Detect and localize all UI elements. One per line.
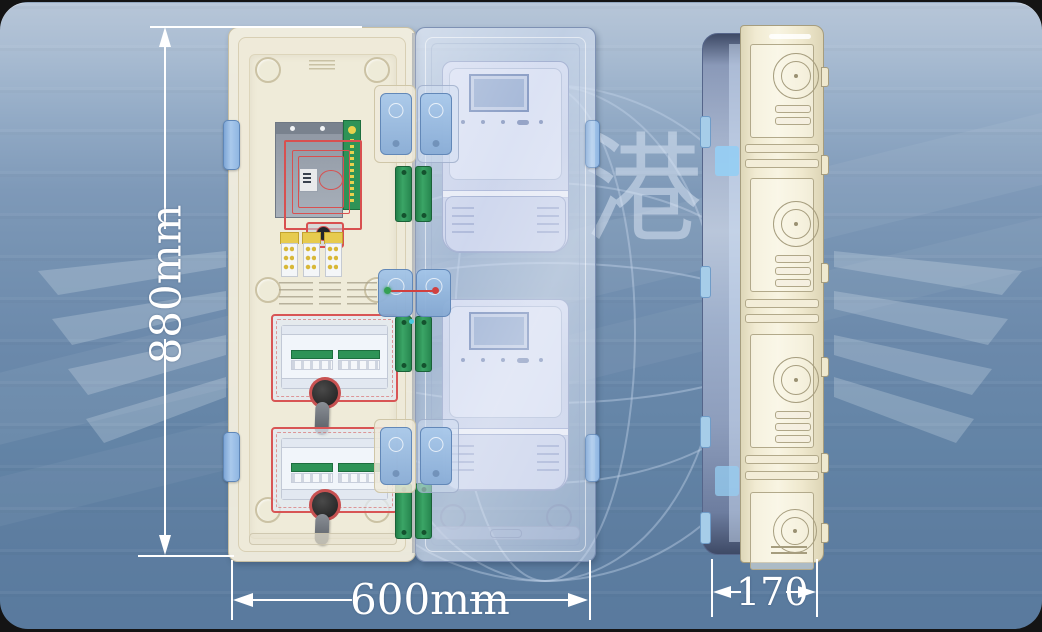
breaker-label-strip: [338, 350, 380, 359]
door-latch: [420, 93, 452, 155]
divider-rail: [745, 314, 819, 323]
arrowhead-down-icon: [159, 535, 171, 555]
side-clip: [700, 416, 711, 448]
din-rail: [282, 326, 387, 335]
breaker-toggles: [291, 360, 333, 370]
image-card: 恒港: [0, 2, 1042, 629]
extension-line: [589, 560, 591, 620]
door-latch: [420, 427, 452, 485]
divider-rail: [745, 455, 819, 464]
dimension-line: [164, 43, 166, 229]
top-vent-slots: [309, 60, 335, 70]
side-latch-block: [715, 466, 739, 496]
knockout-circle: [773, 201, 819, 247]
plate-rail: [276, 123, 342, 134]
divider-rail: [745, 471, 819, 480]
mounting-nub: [821, 453, 829, 473]
dimension-line: [164, 339, 166, 537]
knockout-circle: [773, 53, 819, 99]
corner-screw: [364, 57, 390, 83]
door-latch: [380, 93, 412, 155]
corner-screw: [255, 277, 281, 303]
mounting-nub: [821, 155, 829, 175]
vent-slots: [279, 282, 313, 306]
seal-green-dot: [384, 287, 391, 294]
breaker-row: [281, 438, 388, 500]
vent-slot: [775, 117, 811, 125]
vent-slot: [775, 279, 811, 287]
terminal-block: [281, 232, 298, 276]
height-dimension-label: 880mm: [110, 233, 222, 335]
door-hinge: [223, 432, 240, 482]
green-hinge-strip: [395, 166, 412, 222]
dimension-line: [786, 591, 798, 593]
corner-screw: [255, 57, 281, 83]
side-view: [700, 25, 828, 561]
side-panel: [750, 178, 814, 292]
vent-slot: [775, 255, 811, 263]
door-bottom-ledge: [249, 533, 397, 545]
breaker-toggles: [338, 360, 380, 370]
dimension-line: [470, 599, 568, 601]
mounting-nub: [821, 67, 829, 87]
mounting-nub: [821, 357, 829, 377]
breaker-label-strip: [291, 350, 333, 359]
arrowhead-right-icon: [568, 593, 588, 607]
mounting-nub: [821, 523, 829, 543]
arrowhead-left-icon: [233, 593, 253, 607]
terminal-dots: [305, 246, 316, 272]
side-clip: [700, 116, 711, 148]
divider-rail: [745, 159, 819, 168]
side-panel: [750, 44, 814, 138]
green-hinge-strip: [415, 166, 432, 222]
mounting-nub: [821, 263, 829, 283]
side-latch-block: [715, 146, 739, 176]
side-panel: [750, 334, 814, 448]
terminal-dots: [283, 246, 294, 272]
divider-rail: [745, 144, 819, 153]
divider-rail: [745, 299, 819, 308]
vent-slots: [319, 282, 341, 306]
plate-screw-dot: [290, 126, 295, 131]
seal-wire: [388, 290, 436, 292]
dimension-line: [252, 599, 352, 601]
breaker-label-strip: [291, 463, 333, 472]
green-hinge-strip: [415, 316, 432, 372]
meter-seal-chip: [299, 168, 318, 192]
extension-line: [138, 555, 234, 557]
bottom-vent-line: [771, 546, 807, 548]
side-clip: [700, 266, 711, 298]
vent-slot: [775, 423, 811, 431]
front-view: [228, 27, 594, 560]
vent-slots: [347, 282, 377, 306]
terminal-block: [303, 232, 320, 276]
side-clip: [700, 512, 711, 544]
seal-ellipse-outline: [319, 170, 343, 190]
section-divider: [745, 450, 817, 488]
arrowhead-right-icon: [798, 586, 816, 598]
knockout-circle: [773, 357, 819, 403]
seal-cyan-dot: [409, 319, 414, 324]
vent-slot: [775, 105, 811, 113]
section-divider: [745, 140, 817, 174]
side-panel: [750, 492, 814, 570]
section-divider: [745, 294, 817, 330]
seal-red-dot: [432, 287, 439, 294]
door-hinge: [223, 120, 240, 170]
pcb-led: [348, 126, 356, 134]
green-hinge-strip: [395, 316, 412, 372]
width-dimension-label: 600mm: [350, 574, 472, 626]
extension-line: [150, 26, 362, 28]
door-latch: [380, 427, 412, 485]
plate-screw-dot: [320, 126, 325, 131]
breaker-toggles: [291, 473, 333, 483]
product-image: 恒港: [0, 0, 1042, 632]
bottom-vent-line: [771, 552, 807, 554]
din-rail: [282, 439, 387, 448]
depth-dimension-label: 170: [736, 567, 792, 617]
sealing-lock: [378, 269, 413, 317]
vent-slot: [775, 435, 811, 443]
extension-line: [231, 560, 233, 620]
terminal-block: [325, 232, 342, 276]
vent-slot: [775, 267, 811, 275]
extension-line: [816, 559, 818, 617]
vent-slot: [775, 411, 811, 419]
terminal-dots: [327, 246, 338, 272]
side-body: [740, 25, 824, 563]
highlight-streak: [769, 34, 811, 39]
